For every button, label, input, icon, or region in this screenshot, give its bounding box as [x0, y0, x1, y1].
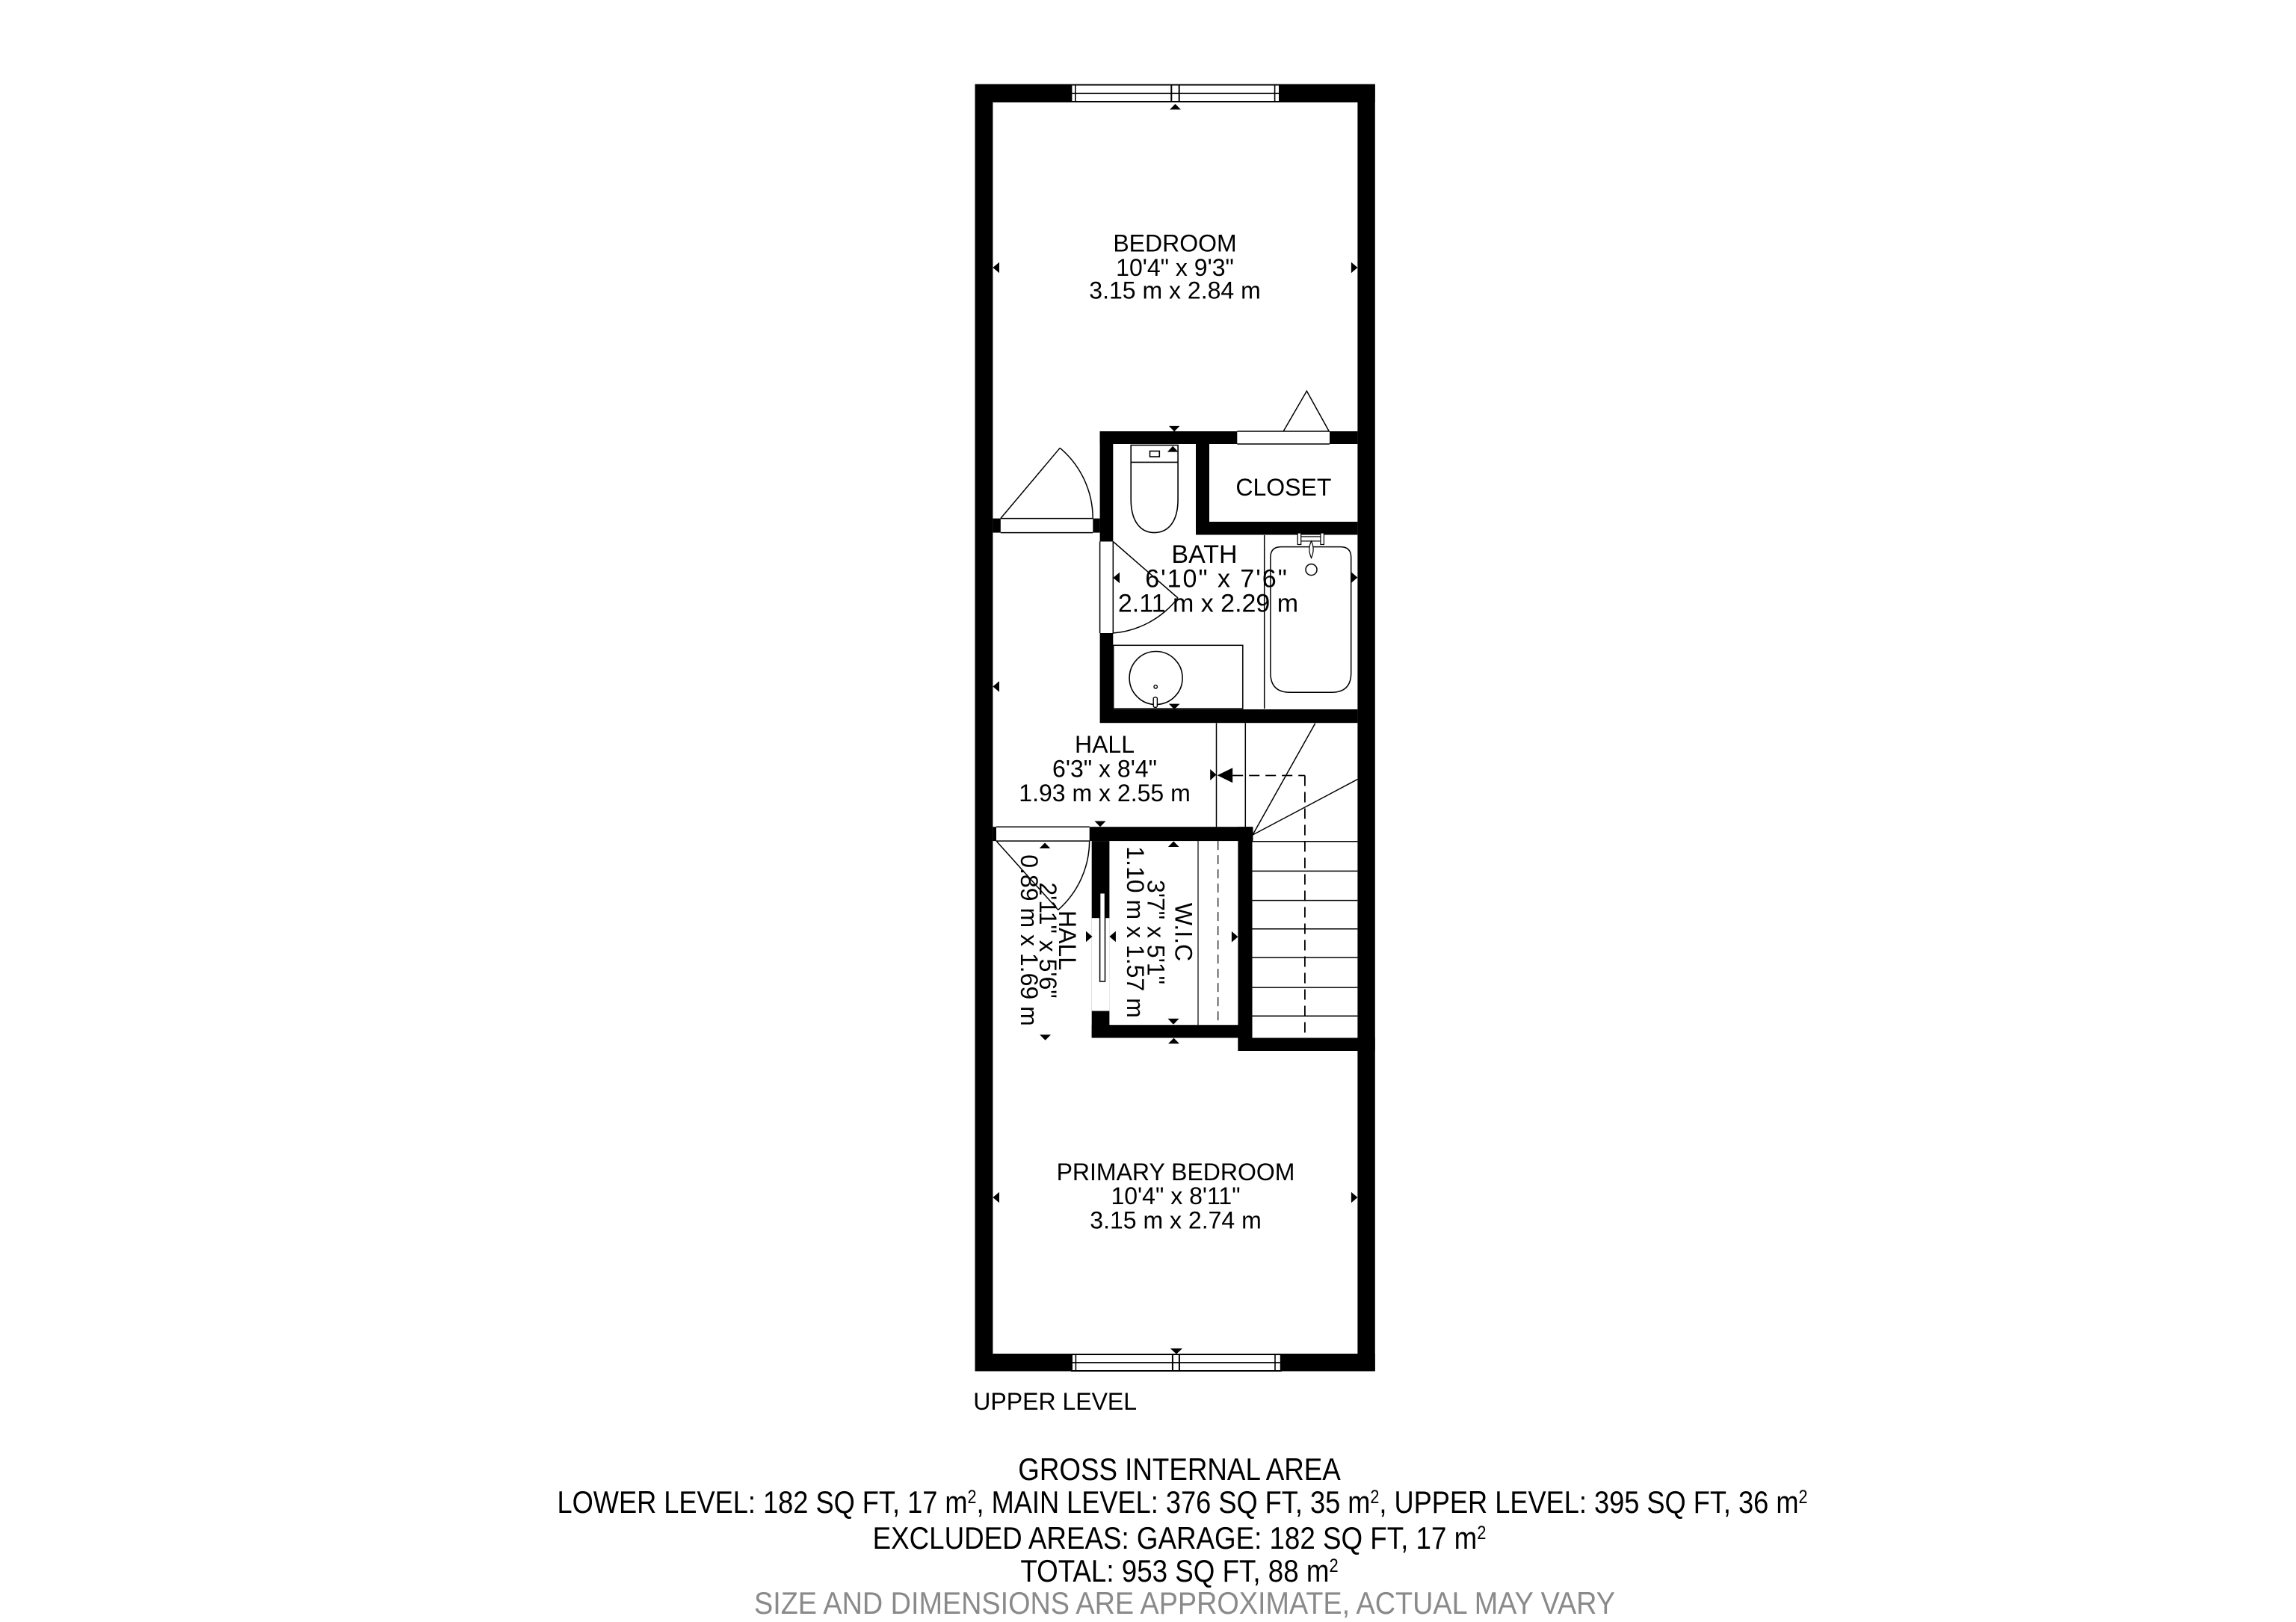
svg-text:LOWER LEVEL: 182 SQ FT, 17 m2,: LOWER LEVEL: 182 SQ FT, 17 m2, MAIN LEVE… — [558, 1486, 1808, 1520]
svg-text:1.10 m x 1.57 m: 1.10 m x 1.57 m — [1122, 846, 1149, 1017]
svg-text:UPPER LEVEL: UPPER LEVEL — [973, 1388, 1137, 1415]
svg-text:CLOSET: CLOSET — [1235, 474, 1331, 501]
svg-text:6'3" x 8'4": 6'3" x 8'4" — [1052, 755, 1157, 782]
svg-text:BEDROOM: BEDROOM — [1113, 229, 1236, 256]
svg-text:HALL: HALL — [1075, 731, 1135, 758]
svg-text:3.15 m x 2.74 m: 3.15 m x 2.74 m — [1090, 1207, 1261, 1234]
svg-text:W.I.C: W.I.C — [1170, 903, 1197, 961]
svg-text:EXCLUDED AREAS: GARAGE: 182 SQ: EXCLUDED AREAS: GARAGE: 182 SQ FT, 17 m2 — [873, 1521, 1487, 1556]
svg-text:PRIMARY BEDROOM: PRIMARY BEDROOM — [1057, 1159, 1295, 1185]
svg-text:GROSS INTERNAL AREA: GROSS INTERNAL AREA — [1018, 1452, 1341, 1487]
svg-text:3.15 m x 2.84 m: 3.15 m x 2.84 m — [1089, 277, 1260, 303]
svg-text:10'4" x 8'11": 10'4" x 8'11" — [1111, 1182, 1240, 1209]
svg-text:TOTAL: 953 SQ FT, 88 m2: TOTAL: 953 SQ FT, 88 m2 — [1020, 1554, 1338, 1589]
svg-text:SIZE AND DIMENSIONS ARE APPROX: SIZE AND DIMENSIONS ARE APPROXIMATE, ACT… — [754, 1586, 1615, 1621]
svg-text:1.93 m x 2.55 m: 1.93 m x 2.55 m — [1019, 780, 1190, 807]
svg-text:2.11 m x 2.29 m: 2.11 m x 2.29 m — [1118, 590, 1298, 618]
svg-text:0.89 m x 1.69 m: 0.89 m x 1.69 m — [1016, 854, 1043, 1026]
